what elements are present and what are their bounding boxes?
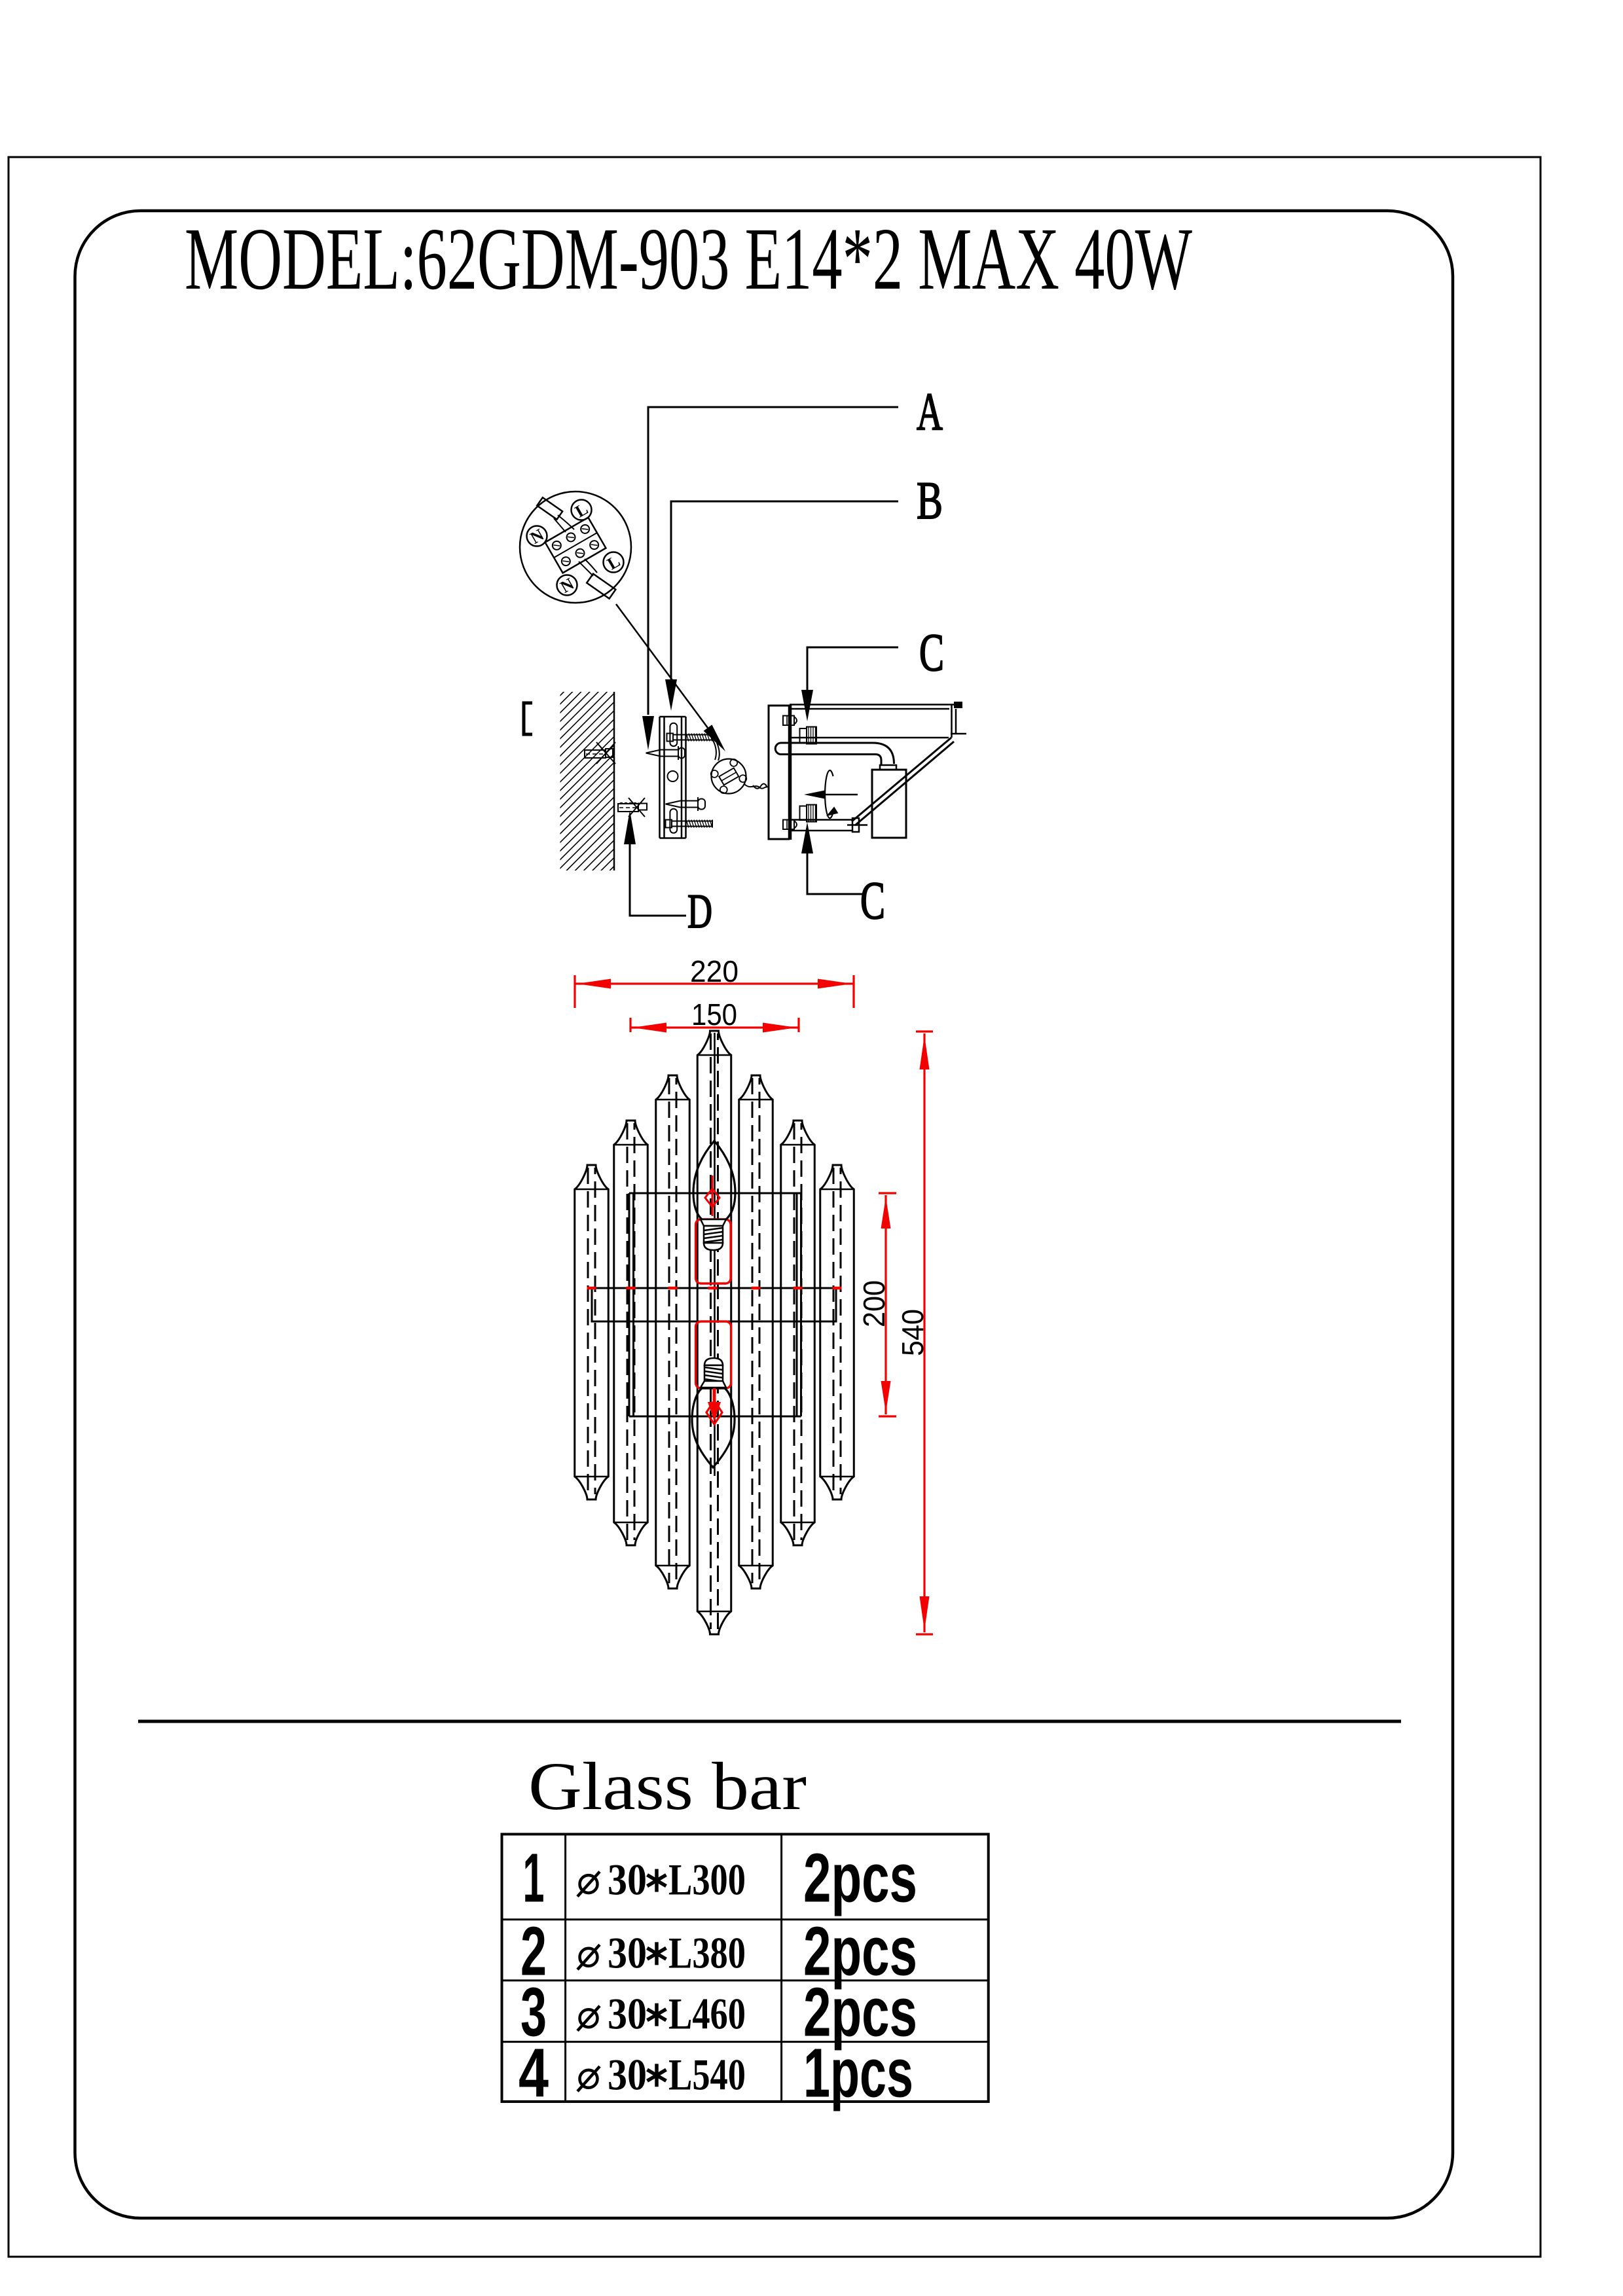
svg-text:150: 150 xyxy=(691,997,737,1031)
svg-text:C: C xyxy=(919,622,944,682)
svg-text:1pcs: 1pcs xyxy=(803,2034,913,2111)
svg-text:B: B xyxy=(917,471,943,530)
svg-text:220: 220 xyxy=(690,954,739,988)
svg-text:30: 30 xyxy=(608,1855,647,1905)
svg-text:L460: L460 xyxy=(668,1989,746,2039)
svg-text:540: 540 xyxy=(896,1309,930,1356)
svg-text:L540: L540 xyxy=(668,2049,746,2099)
svg-text:L380: L380 xyxy=(668,1928,746,1977)
svg-text:4: 4 xyxy=(519,2034,549,2111)
svg-text:2pcs: 2pcs xyxy=(803,1840,917,1917)
svg-text:30: 30 xyxy=(608,1928,647,1977)
svg-text:1: 1 xyxy=(523,1840,545,1917)
svg-text:C: C xyxy=(860,870,885,930)
svg-text:200: 200 xyxy=(857,1280,891,1327)
svg-text:Glass bar: Glass bar xyxy=(528,1749,807,1824)
svg-text:D: D xyxy=(687,885,712,939)
svg-text:30: 30 xyxy=(608,1989,647,2039)
svg-text:30: 30 xyxy=(608,2049,647,2099)
svg-text:A: A xyxy=(917,382,943,441)
svg-text:MODEL:62GDM-903 E14*2 MAX 40W: MODEL:62GDM-903 E14*2 MAX 40W xyxy=(185,210,1192,308)
svg-text:L300: L300 xyxy=(668,1855,746,1905)
